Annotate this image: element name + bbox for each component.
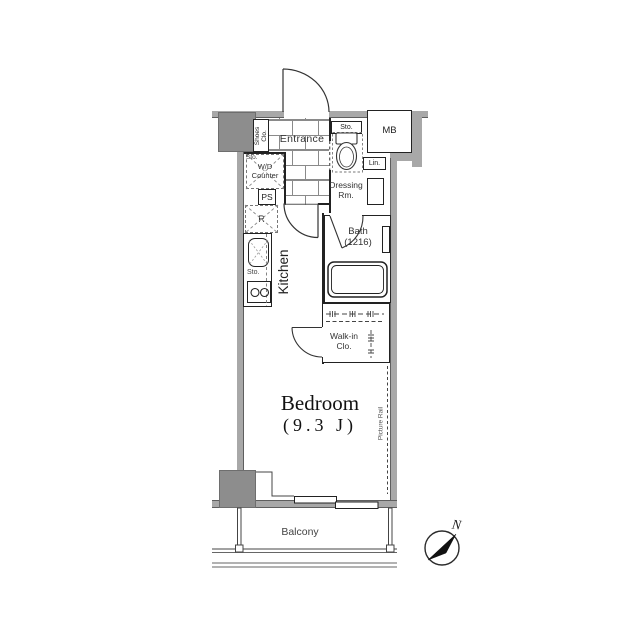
compass bbox=[425, 531, 459, 565]
wd-counter-label: W/D Counter bbox=[246, 163, 284, 180]
picture-rail-label: Picture Rail bbox=[351, 417, 411, 430]
storage-counter-label: Sto. bbox=[246, 154, 258, 161]
floor-plan: MB Sto. Lin. Shoes Clo. PS R bbox=[0, 0, 640, 640]
sink-cross bbox=[249, 240, 268, 265]
dressing-room-label: Dressing Rm. bbox=[321, 181, 371, 201]
wall-step bbox=[256, 472, 294, 496]
bath-label: Bath (1216) bbox=[328, 227, 388, 249]
bedroom-window bbox=[295, 497, 379, 509]
balcony-label: Balcony bbox=[270, 526, 330, 538]
stove-burners bbox=[251, 289, 269, 297]
walkin-door bbox=[292, 328, 322, 358]
entrance-door bbox=[283, 69, 329, 112]
refrigerator-cross bbox=[245, 205, 278, 233]
entrance-label: Entrance bbox=[272, 133, 332, 145]
bathtub bbox=[328, 262, 387, 297]
walk-in-closet-label: Walk-in Clo. bbox=[319, 332, 369, 352]
linework bbox=[0, 0, 640, 640]
storage-kitchen-label: Sto. bbox=[247, 269, 259, 277]
toilet bbox=[333, 133, 363, 173]
hall-door bbox=[284, 204, 318, 238]
kitchen-label: Kitchen bbox=[253, 264, 313, 280]
